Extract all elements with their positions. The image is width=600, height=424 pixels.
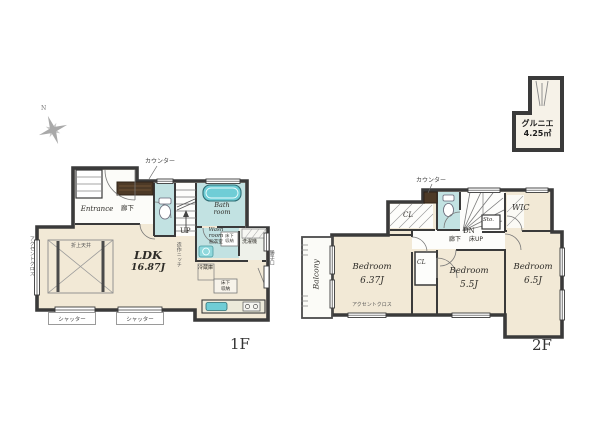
kitchen-counter	[202, 300, 265, 313]
sink-icon	[206, 303, 227, 311]
toilet-icon-1f	[159, 198, 171, 219]
compass-rose	[34, 111, 72, 149]
floorplan-drawing	[0, 0, 600, 424]
toilet-icon-2f	[443, 195, 454, 217]
shutter-label-left: シャッター	[48, 312, 96, 325]
shoe-cabinet	[76, 170, 102, 198]
balcony-outline	[301, 237, 332, 318]
laundry-counter	[242, 229, 266, 238]
floor1-plan	[35, 166, 270, 320]
stove-icon	[243, 302, 260, 311]
grenier-outline	[514, 78, 562, 150]
bathtub-icon	[203, 185, 241, 201]
storage-box-2f	[482, 215, 500, 229]
underfloor-storage-box-kitchen	[214, 279, 237, 293]
washing-machine-icon	[199, 246, 213, 257]
counter-leader-line	[149, 166, 157, 179]
floorplan-canvas: N グルニエ 4.25㎡ カウンター Entrance 廊下 UP Bath r…	[0, 0, 600, 424]
floor2-plan	[301, 184, 565, 337]
underfloor-storage-box-wash	[221, 232, 238, 246]
counter-2f	[424, 192, 437, 203]
shutter-label-right: シャッター	[116, 312, 164, 325]
